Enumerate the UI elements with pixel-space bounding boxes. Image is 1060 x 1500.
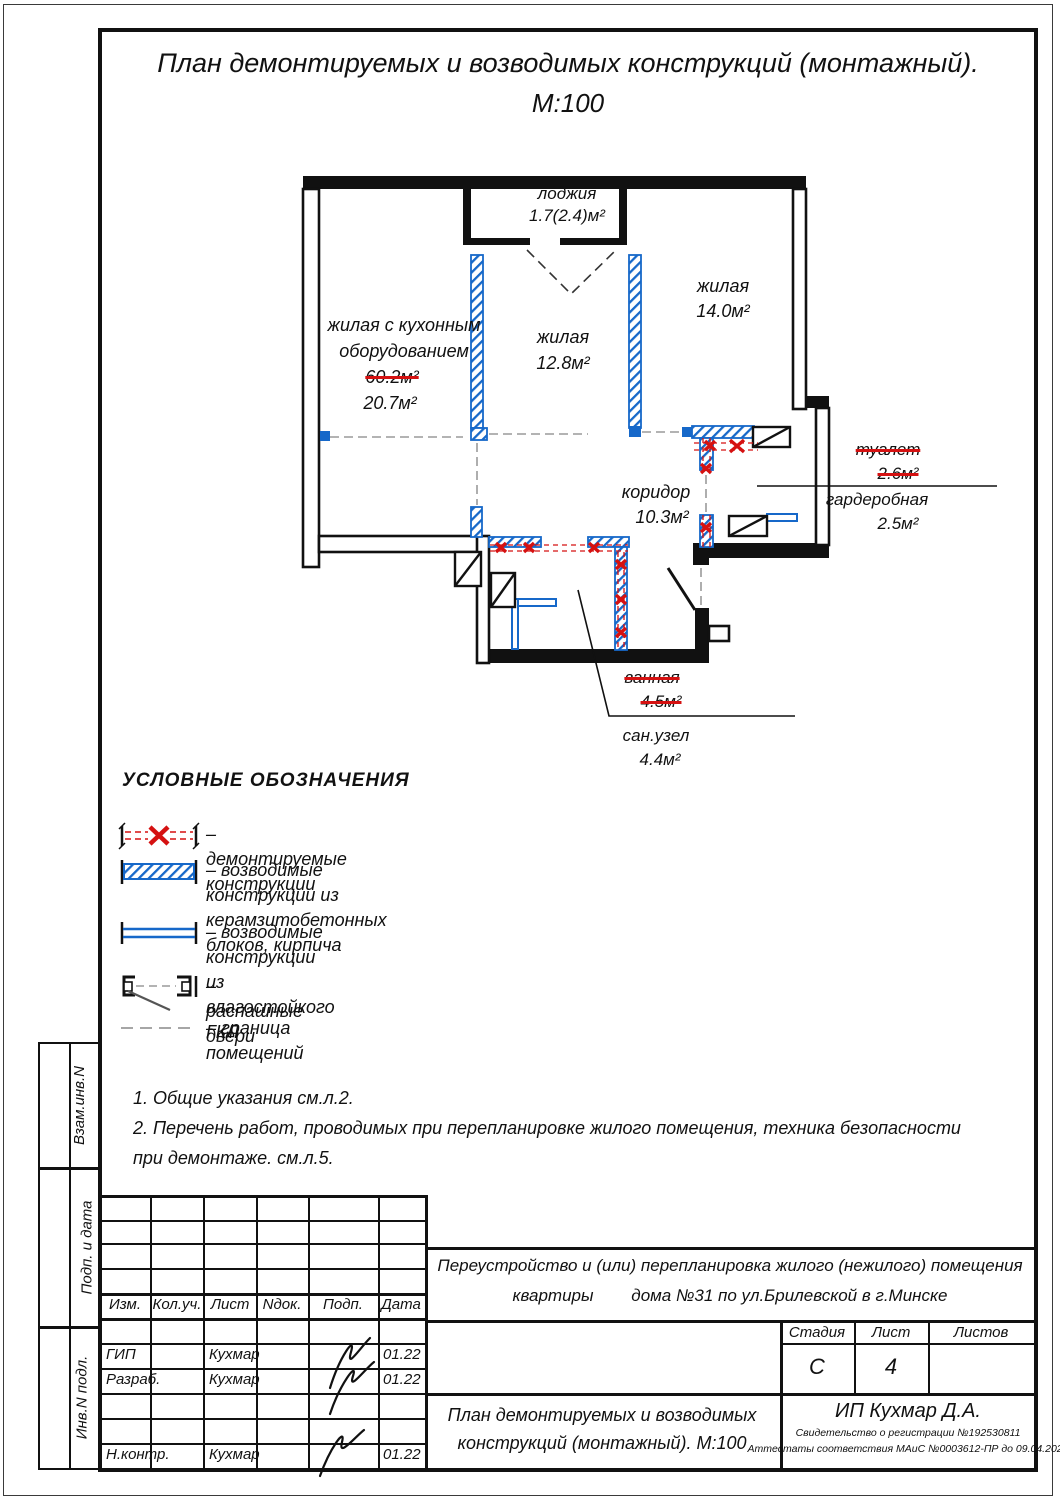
stamp-inv-text: Инв.N подл. <box>40 1389 71 1407</box>
room-label-loggia: лоджия <box>538 184 597 204</box>
titleblock-line <box>854 1320 856 1393</box>
col-header-ndok: Nдок. <box>263 1296 302 1313</box>
titleblock-line <box>425 1195 428 1468</box>
project-name-line1: Переустройство и (или) перепланировка жи… <box>437 1256 1022 1276</box>
room-area-living12: 12.8м² <box>536 353 589 374</box>
org-cert1: Свидетельство о регистрации №192530811 <box>796 1427 1021 1439</box>
room-label-toilet: туалет <box>856 440 921 460</box>
signatures <box>308 1326 382 1482</box>
sheet-label: Лист <box>872 1324 911 1341</box>
titleblock-line <box>150 1195 152 1468</box>
room-area-wardrobe: 2.5м² <box>878 514 919 534</box>
room-label-sanunit: сан.узел <box>623 726 690 746</box>
titleblock-line <box>256 1195 258 1468</box>
legend-label-boundary: – граница помещений <box>206 1016 304 1066</box>
doc-name-line1: План демонтируемых и возводимых <box>448 1405 757 1426</box>
room-label-kitchen-1: жилая с кухонным <box>328 315 481 336</box>
room-area-bathroom: 4.5м² <box>641 692 682 712</box>
titleblock-line <box>425 1247 1035 1250</box>
room-area-living14: 14.0м² <box>696 301 749 322</box>
room-area-corridor: 10.3м² <box>635 507 688 528</box>
room-area-toilet: 2.6м² <box>878 464 919 484</box>
titleblock-line <box>780 1343 1035 1345</box>
titleblock-line <box>425 1393 1035 1396</box>
row-name-gip: Кухмар <box>209 1346 260 1363</box>
row-date-nkontr: 01.22 <box>383 1446 421 1463</box>
doors-symbol <box>118 974 213 1014</box>
stamp-cell-podp: Подп. и дата <box>38 1167 100 1329</box>
room-label-bathroom: ванная <box>624 668 679 688</box>
stamp-vzam-text: Взам.инв.N <box>40 1097 71 1115</box>
room-area-kitchen-old: 60.2м² <box>365 367 418 388</box>
general-notes: 1. Общие указания см.л.2. 2. Перечень ра… <box>133 1083 1023 1173</box>
col-header-list: Лист <box>211 1296 250 1313</box>
titleblock-line <box>100 1268 425 1270</box>
titleblock-line <box>100 1318 425 1321</box>
row-name-razrab: Кухмар <box>209 1371 260 1388</box>
row-role-razrab: Разраб. <box>106 1371 160 1388</box>
room-label-kitchen-2: оборудованием <box>339 341 469 362</box>
project-name-line2: квартиры дома №31 по ул.Брилевской в г.М… <box>512 1286 947 1306</box>
titleblock-line <box>100 1220 425 1222</box>
titleblock-line <box>100 1195 425 1198</box>
bearing-walls <box>303 176 829 663</box>
drawing-sheet: План демонтируемых и возводимых конструк… <box>0 0 1060 1500</box>
room-label-wardrobe: гардеробная <box>826 490 928 510</box>
drawing-title-line1: План демонтируемых и возводимых конструк… <box>157 48 979 79</box>
masonry-symbol <box>118 858 200 886</box>
balcony-door-swing <box>527 250 616 294</box>
titleblock-line <box>203 1195 205 1468</box>
room-area-kitchen-new: 20.7м² <box>363 393 416 414</box>
doc-name-line2: конструкций (монтажный). М:100 <box>457 1433 746 1454</box>
stamp-podp-text: Подп. и дата <box>40 1239 71 1257</box>
col-header-koluch: Кол.уч. <box>153 1296 202 1313</box>
room-area-sanunit: 4.4м² <box>640 750 681 770</box>
boundary-symbol <box>118 1016 200 1040</box>
legend-title: УСЛОВНЫЕ ОБОЗНАЧЕНИЯ <box>122 770 410 792</box>
col-header-podp: Подп. <box>323 1296 363 1313</box>
stamp-cell-vzam: Взам.инв.N <box>38 1042 100 1170</box>
row-role-nkontr: Н.контр. <box>106 1446 170 1463</box>
row-date-gip: 01.22 <box>383 1346 421 1363</box>
room-area-loggia: 1.7(2.4)м² <box>529 206 605 226</box>
titleblock-line <box>100 1243 425 1245</box>
titleblock-line <box>425 1320 1035 1323</box>
col-header-data: Дата <box>381 1296 421 1313</box>
stage-value: С <box>809 1354 825 1380</box>
col-header-izm: Изм. <box>109 1296 141 1313</box>
demolition-symbol <box>118 822 200 850</box>
sheet-value: 4 <box>885 1354 897 1380</box>
drawing-title-line2: М:100 <box>532 88 604 119</box>
sheets-label: Листов <box>954 1324 1009 1341</box>
stage-label: Стадия <box>789 1324 845 1341</box>
org-name: ИП Кухмар Д.А. <box>835 1400 981 1423</box>
row-date-razrab: 01.22 <box>383 1371 421 1388</box>
titleblock-line <box>928 1320 930 1393</box>
row-name-nkontr: Кухмар <box>209 1446 260 1463</box>
org-cert2: Аттестаты соответствия МАиС №0003612-ПР … <box>748 1443 1060 1455</box>
room-label-living12: жилая <box>537 327 589 348</box>
room-label-living14: жилая <box>697 276 749 297</box>
row-role-gip: ГИП <box>106 1346 136 1363</box>
gkl-symbol <box>118 920 200 948</box>
stamp-cell-inv: Инв.N подл. <box>38 1326 100 1470</box>
room-label-corridor: коридор <box>622 482 691 503</box>
